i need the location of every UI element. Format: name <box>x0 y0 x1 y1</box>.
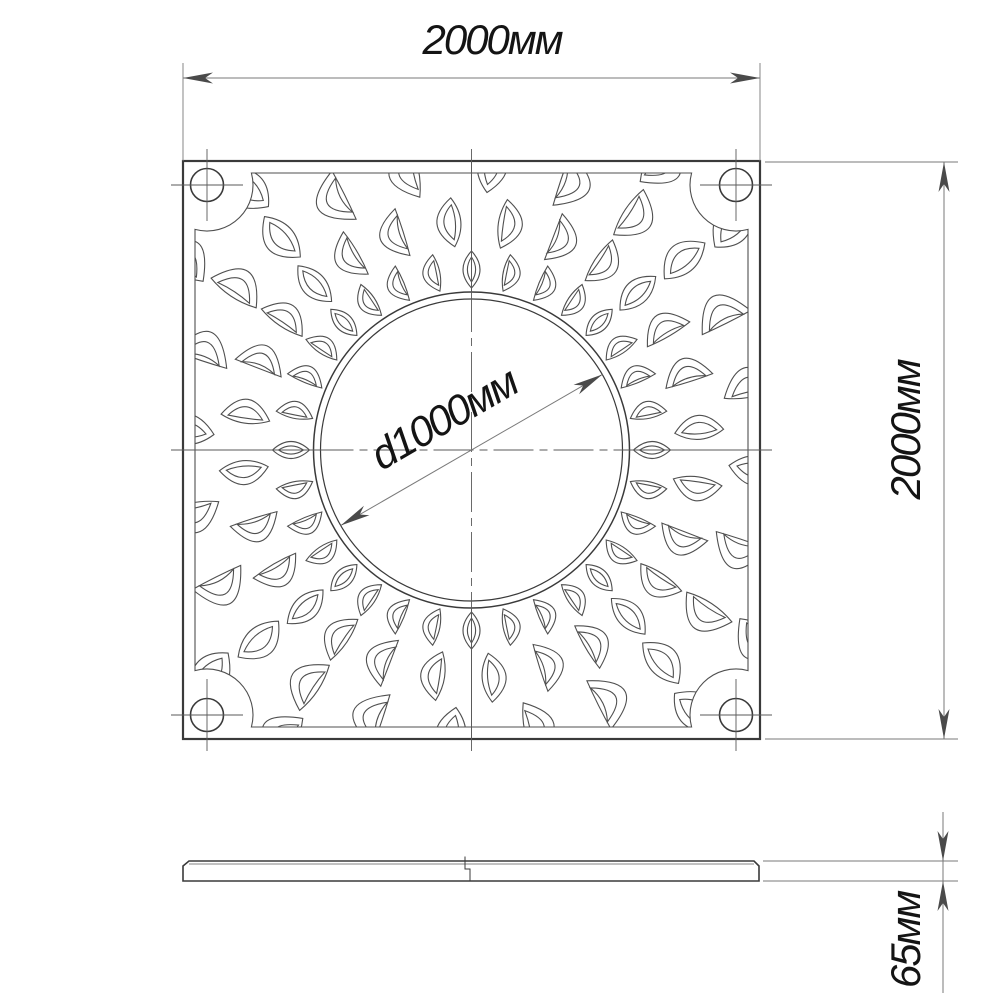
arrow-diagonal-lower-icon <box>338 506 369 531</box>
arrow-diagonal-upper-icon <box>574 370 605 395</box>
diameter-dimension-label: d1000мм <box>363 357 526 478</box>
technical-drawing-page: 2000мм 2000мм d1000мм 65мм <box>0 0 1000 1000</box>
width-dimension: 2000мм <box>183 16 760 161</box>
side-view: 65мм <box>183 812 958 993</box>
thickness-dimension-label: 65мм <box>882 891 929 989</box>
height-dimension-label: 2000мм <box>882 359 929 500</box>
thickness-dimension: 65мм <box>763 812 958 993</box>
technical-drawing-canvas: 2000мм 2000мм d1000мм 65мм <box>0 0 1000 1000</box>
width-dimension-label: 2000мм <box>421 16 562 63</box>
side-view-seam-step <box>465 857 470 882</box>
